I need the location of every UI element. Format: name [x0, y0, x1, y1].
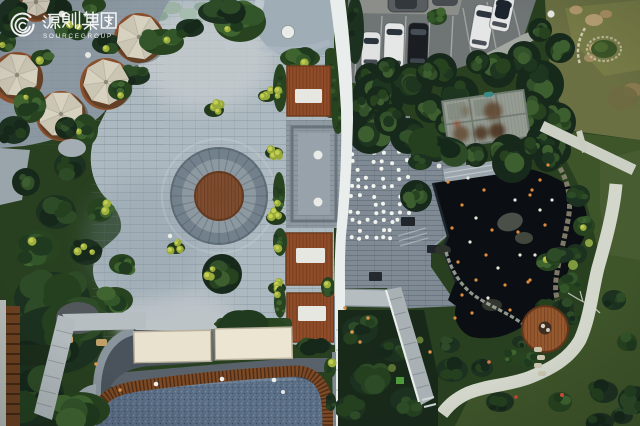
- svg-text:SOURCEGROUP: SOURCEGROUP: [43, 33, 113, 40]
